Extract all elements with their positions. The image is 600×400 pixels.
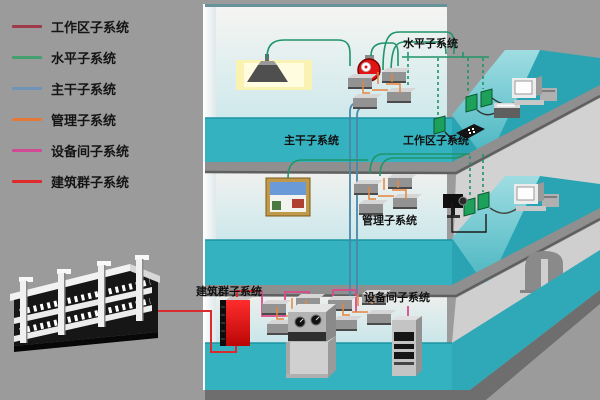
cabling-system-diagram: 工作区子系统 水平子系统 主干子系统 管理子系统 设备间子系统 建筑群子系统 水… [0, 0, 600, 400]
legend-label: 主干子系统 [51, 79, 116, 98]
legend-label: 工作区子系统 [51, 17, 129, 36]
management-subsystem-label: 管理子系统 [362, 215, 417, 226]
red-terminal-box [220, 297, 252, 346]
legend-item-campus: 建筑群子系统 [12, 173, 129, 190]
campus-subsystem-label: 建筑群子系统 [196, 286, 262, 297]
horizontal-subsystem-label: 水平子系统 [403, 38, 458, 49]
campus-line-swatch [12, 180, 42, 183]
management-line-swatch [12, 118, 42, 121]
equipment-line-swatch [12, 149, 42, 152]
picture-frame-icon [266, 178, 310, 216]
floor2-floor [205, 240, 452, 285]
legend-item-workarea: 工作区子系统 [12, 18, 129, 35]
legend-item-management: 管理子系统 [12, 111, 129, 128]
left-wall-edge [203, 4, 216, 390]
backbone-subsystem-label: 主干子系统 [284, 135, 339, 146]
legend-item-equipment: 设备间子系统 [12, 142, 129, 159]
equipment-subsystem-label: 设备间子系统 [364, 292, 430, 303]
legend-label: 设备间子系统 [51, 141, 129, 160]
horizontal-line-swatch [12, 56, 42, 59]
legend-label: 水平子系统 [51, 48, 116, 67]
legend: 工作区子系统 水平子系统 主干子系统 管理子系统 设备间子系统 建筑群子系统 [12, 18, 129, 204]
workarea-line-swatch [12, 25, 42, 28]
ceiling-line [205, 4, 447, 7]
legend-label: 建筑群子系统 [51, 172, 129, 191]
workarea-subsystem-label: 工作区子系统 [403, 135, 469, 146]
printer-icon [494, 103, 520, 118]
legend-item-horizontal: 水平子系统 [12, 49, 129, 66]
legend-item-backbone: 主干子系统 [12, 80, 129, 97]
backbone-line-swatch [12, 87, 42, 90]
server-rack [392, 316, 422, 376]
legend-label: 管理子系统 [51, 110, 116, 129]
